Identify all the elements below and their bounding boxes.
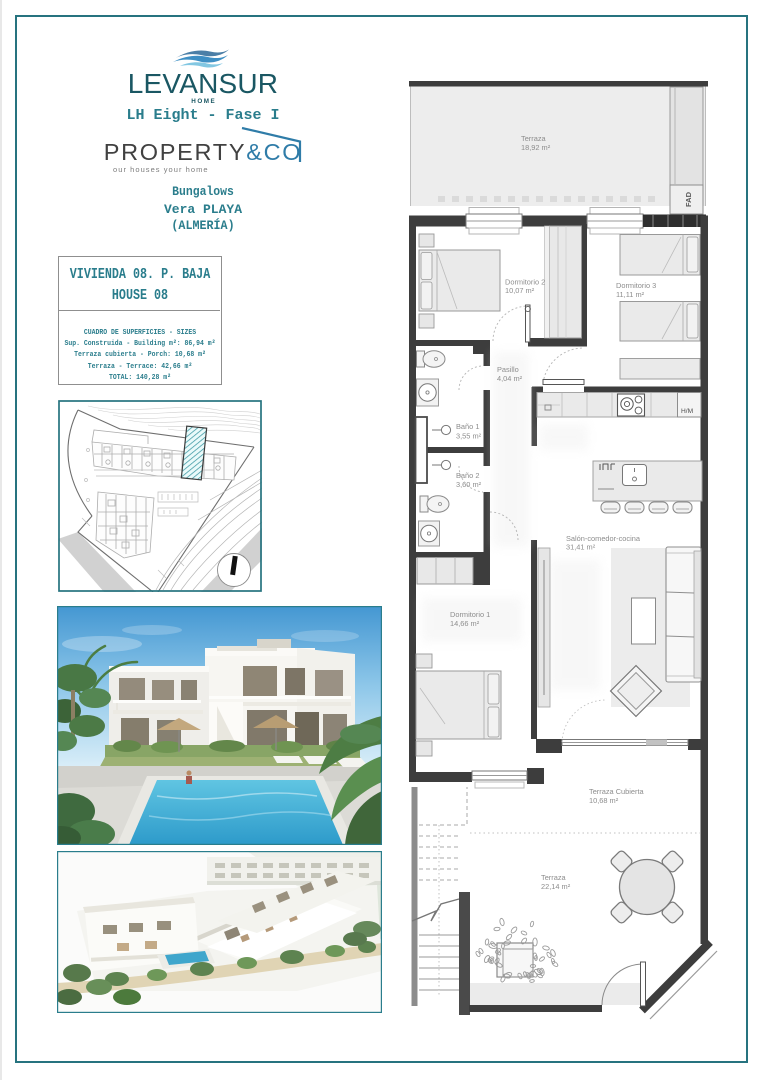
svg-text:14,66 m²: 14,66 m² [450, 619, 480, 628]
svg-text:4,04 m²: 4,04 m² [497, 374, 523, 383]
svg-text:Terraza: Terraza [521, 134, 547, 143]
svg-text:Baño 1: Baño 1 [456, 422, 479, 431]
svg-text:Terraza: Terraza [541, 873, 567, 882]
svg-text:3,55 m²: 3,55 m² [456, 432, 482, 441]
svg-text:10,07 m²: 10,07 m² [505, 286, 535, 295]
svg-text:22,14 m²: 22,14 m² [541, 882, 571, 891]
svg-text:10,68 m²: 10,68 m² [589, 796, 619, 805]
svg-text:18,92 m²: 18,92 m² [521, 143, 551, 152]
svg-text:Dormitorio 1: Dormitorio 1 [450, 610, 490, 619]
svg-text:Baño 2: Baño 2 [456, 471, 479, 480]
svg-text:31,41 m²: 31,41 m² [566, 543, 596, 552]
svg-text:11,11 m²: 11,11 m² [616, 290, 645, 299]
svg-text:3,60 m²: 3,60 m² [456, 480, 482, 489]
svg-text:Pasillo: Pasillo [497, 365, 519, 374]
svg-text:Dormitorio 3: Dormitorio 3 [616, 281, 656, 290]
svg-text:FAD: FAD [684, 191, 693, 207]
svg-text:Terraza Cubierta: Terraza Cubierta [589, 787, 645, 796]
svg-text:H/M: H/M [681, 408, 693, 415]
